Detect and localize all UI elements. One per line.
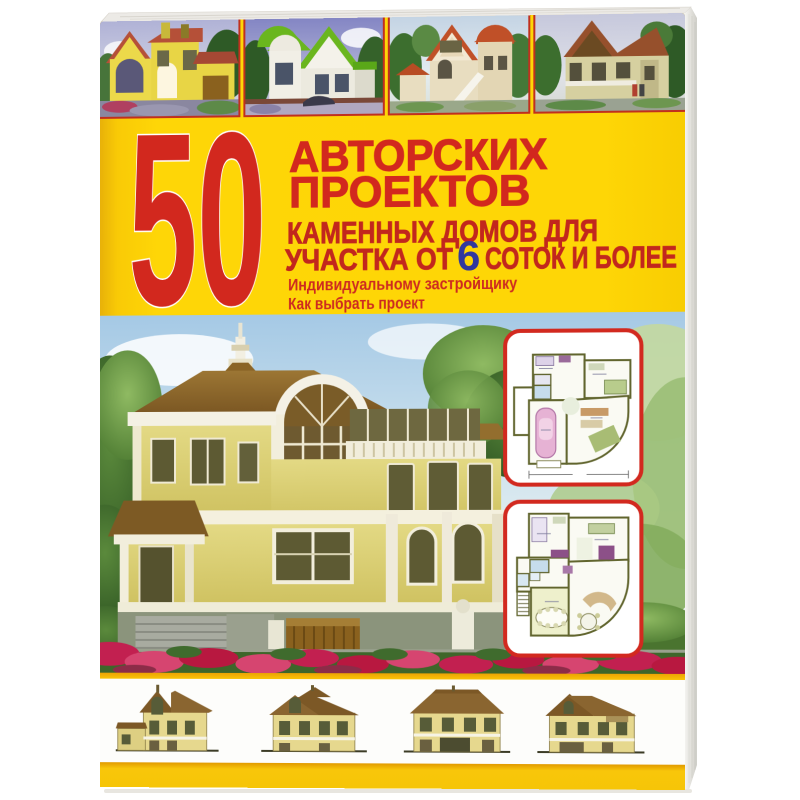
svg-text:6: 6	[457, 231, 480, 279]
svg-text:ПРОЕКТОВ: ПРОЕКТОВ	[289, 167, 530, 218]
svg-text:СОТОК И БОЛЕЕ: СОТОК И БОЛЕЕ	[485, 240, 677, 276]
svg-text:Как выбрать проект: Как выбрать проект	[288, 294, 425, 313]
svg-text:Индивидуальному застройщику: Индивидуальному застройщику	[288, 275, 517, 295]
svg-text:50: 50	[129, 80, 267, 339]
svg-text:УЧАСТКА ОТ: УЧАСТКА ОТ	[285, 242, 453, 278]
